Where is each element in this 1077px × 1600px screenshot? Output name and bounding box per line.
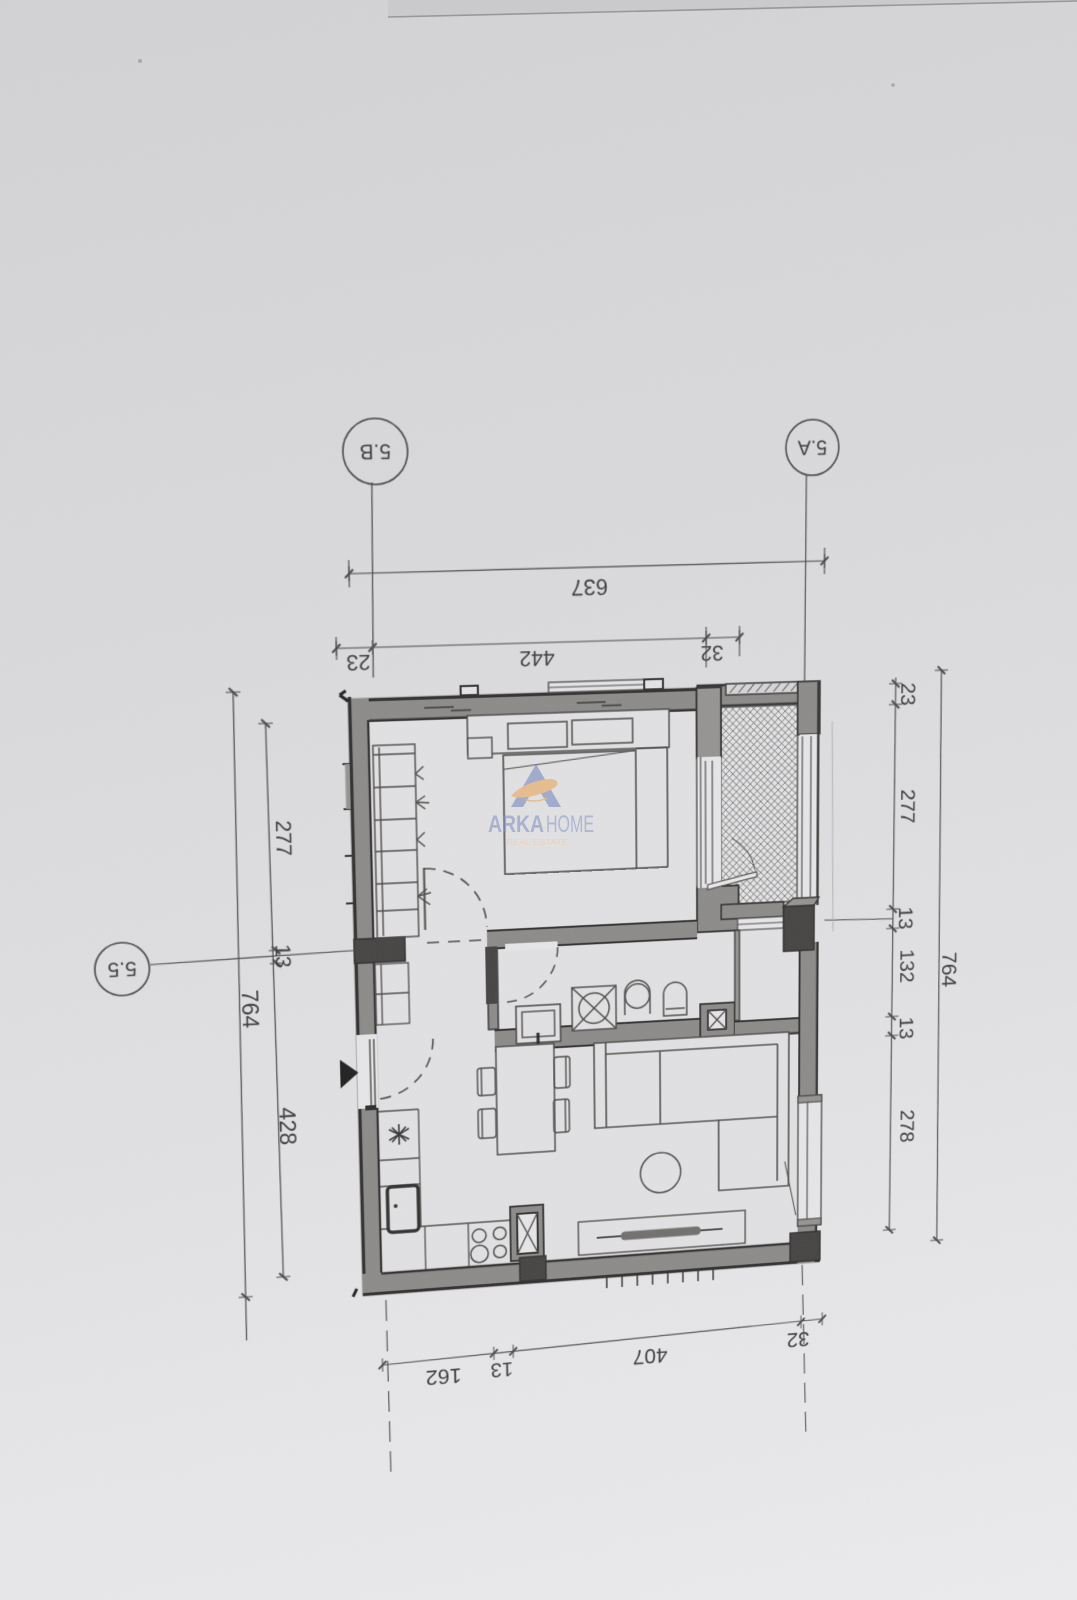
svg-text:764: 764 [937, 951, 960, 987]
svg-text:23: 23 [896, 682, 918, 706]
svg-text:23: 23 [346, 649, 371, 674]
svg-text:13: 13 [490, 1357, 513, 1380]
svg-text:5.A: 5.A [798, 436, 828, 459]
svg-text:REAL ESTATE: REAL ESTATE [506, 837, 568, 847]
svg-text:407: 407 [633, 1343, 668, 1368]
svg-text:162: 162 [425, 1363, 461, 1388]
svg-text:13: 13 [894, 906, 916, 930]
svg-text:5.5: 5.5 [107, 957, 137, 981]
svg-text:ARKA: ARKA [488, 811, 544, 838]
svg-text:13: 13 [895, 1016, 917, 1039]
svg-text:HOME: HOME [546, 811, 594, 838]
svg-text:277: 277 [896, 789, 918, 824]
svg-text:5.B: 5.B [359, 440, 391, 464]
svg-text:442: 442 [519, 645, 555, 670]
svg-text:32: 32 [787, 1327, 810, 1351]
svg-text:32: 32 [701, 640, 724, 664]
svg-text:278: 278 [895, 1109, 917, 1143]
svg-text:277: 277 [270, 820, 295, 857]
svg-text:637: 637 [571, 574, 608, 600]
svg-text:764: 764 [236, 989, 263, 1029]
svg-text:132: 132 [895, 949, 917, 984]
svg-text:428: 428 [274, 1107, 300, 1146]
svg-text:13: 13 [270, 944, 294, 969]
